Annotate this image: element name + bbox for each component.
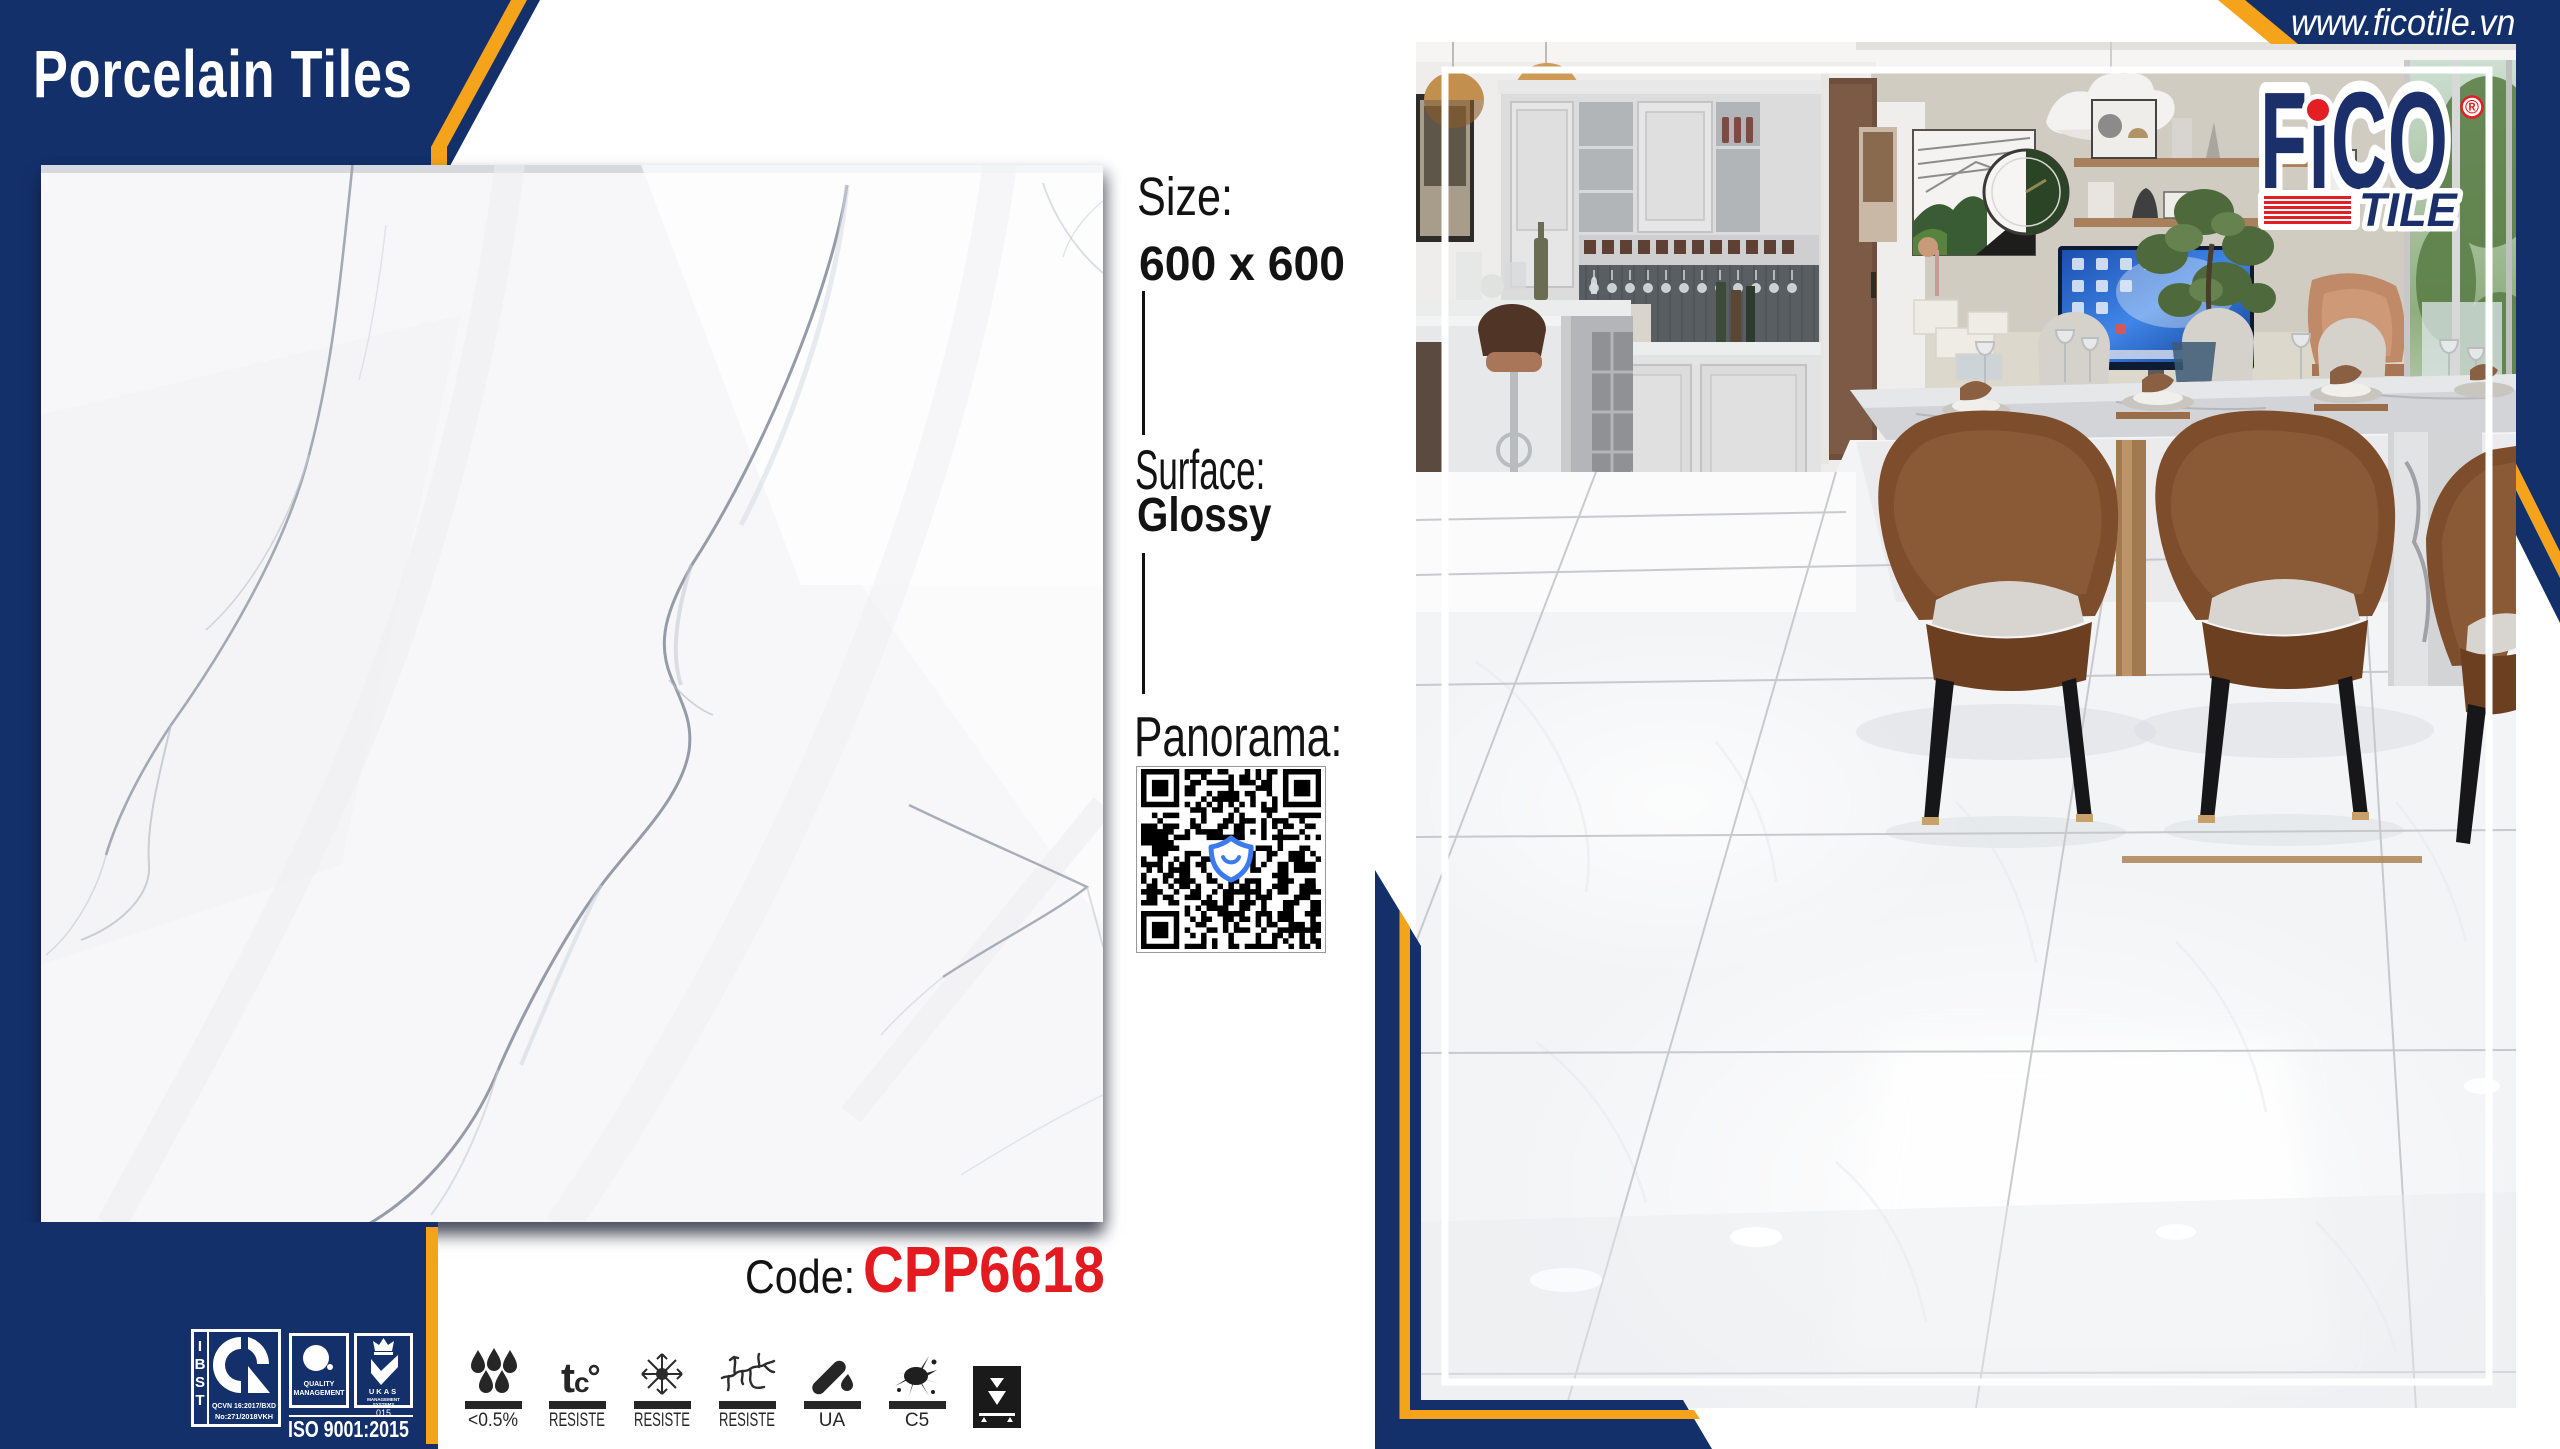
svg-text:®: ® [2465,98,2479,119]
svg-text:TILE: TILE [2359,183,2458,236]
